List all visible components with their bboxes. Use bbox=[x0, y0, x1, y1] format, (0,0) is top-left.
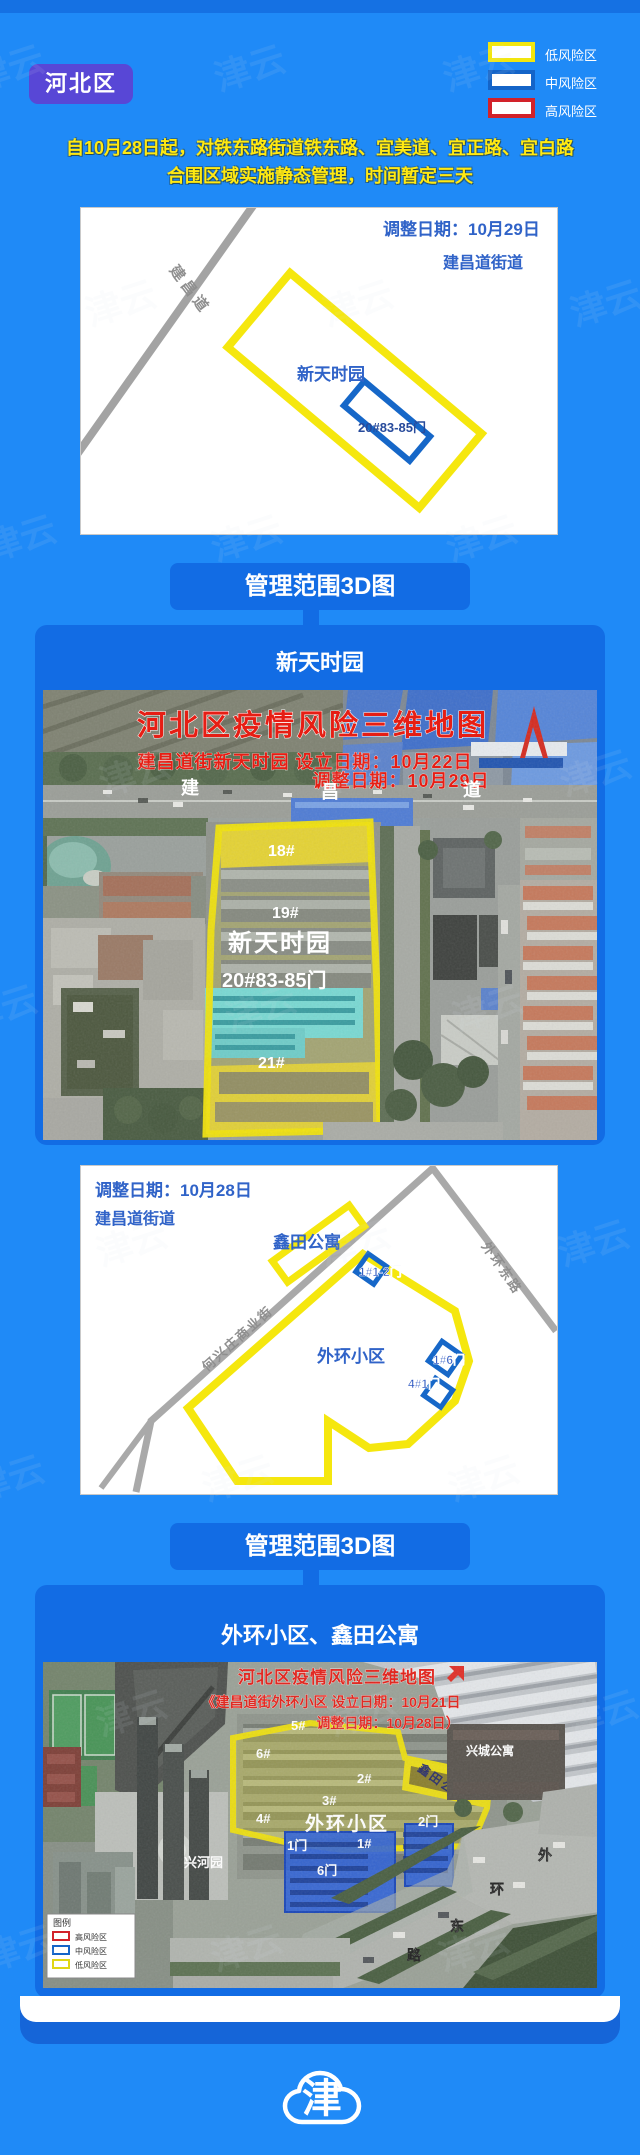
svg-text:图例: 图例 bbox=[53, 1917, 71, 1928]
svg-text:外环小区: 外环小区 bbox=[317, 1346, 385, 1366]
svg-text:道: 道 bbox=[463, 779, 481, 800]
svg-text:河北区疫情风险三维地图: 河北区疫情风险三维地图 bbox=[137, 708, 489, 742]
svg-text:低风险区: 低风险区 bbox=[75, 1960, 107, 1970]
svg-text:中风险区: 中风险区 bbox=[75, 1946, 107, 1956]
svg-text:19#: 19# bbox=[272, 905, 299, 922]
svg-text:新天时园: 新天时园 bbox=[228, 929, 332, 957]
svg-text:1#6门: 1#6门 bbox=[433, 1352, 465, 1367]
svg-text:建昌道街新天时园 设立日期：10月22日: 建昌道街新天时园 设立日期：10月22日 bbox=[137, 751, 472, 772]
svg-text:20#83-85门: 20#83-85门 bbox=[358, 420, 426, 435]
svg-text:新天时园: 新天时园 bbox=[297, 364, 365, 384]
svg-text:1#1-2门: 1#1-2门 bbox=[359, 1264, 402, 1279]
svg-text:高风险区: 高风险区 bbox=[75, 1932, 107, 1942]
svg-text:建昌道街道: 建昌道街道 bbox=[443, 253, 523, 272]
svg-text:建: 建 bbox=[181, 777, 199, 798]
svg-text:4#1门: 4#1门 bbox=[408, 1376, 440, 1391]
svg-text:外环东路: 外环东路 bbox=[478, 1238, 525, 1297]
svg-text:调整日期：10月29日: 调整日期：10月29日 bbox=[383, 219, 540, 239]
svg-text:21#: 21# bbox=[258, 1055, 285, 1072]
svg-text:18#: 18# bbox=[268, 843, 295, 860]
svg-text:调整日期：10月28日: 调整日期：10月28日 bbox=[95, 1180, 252, 1200]
